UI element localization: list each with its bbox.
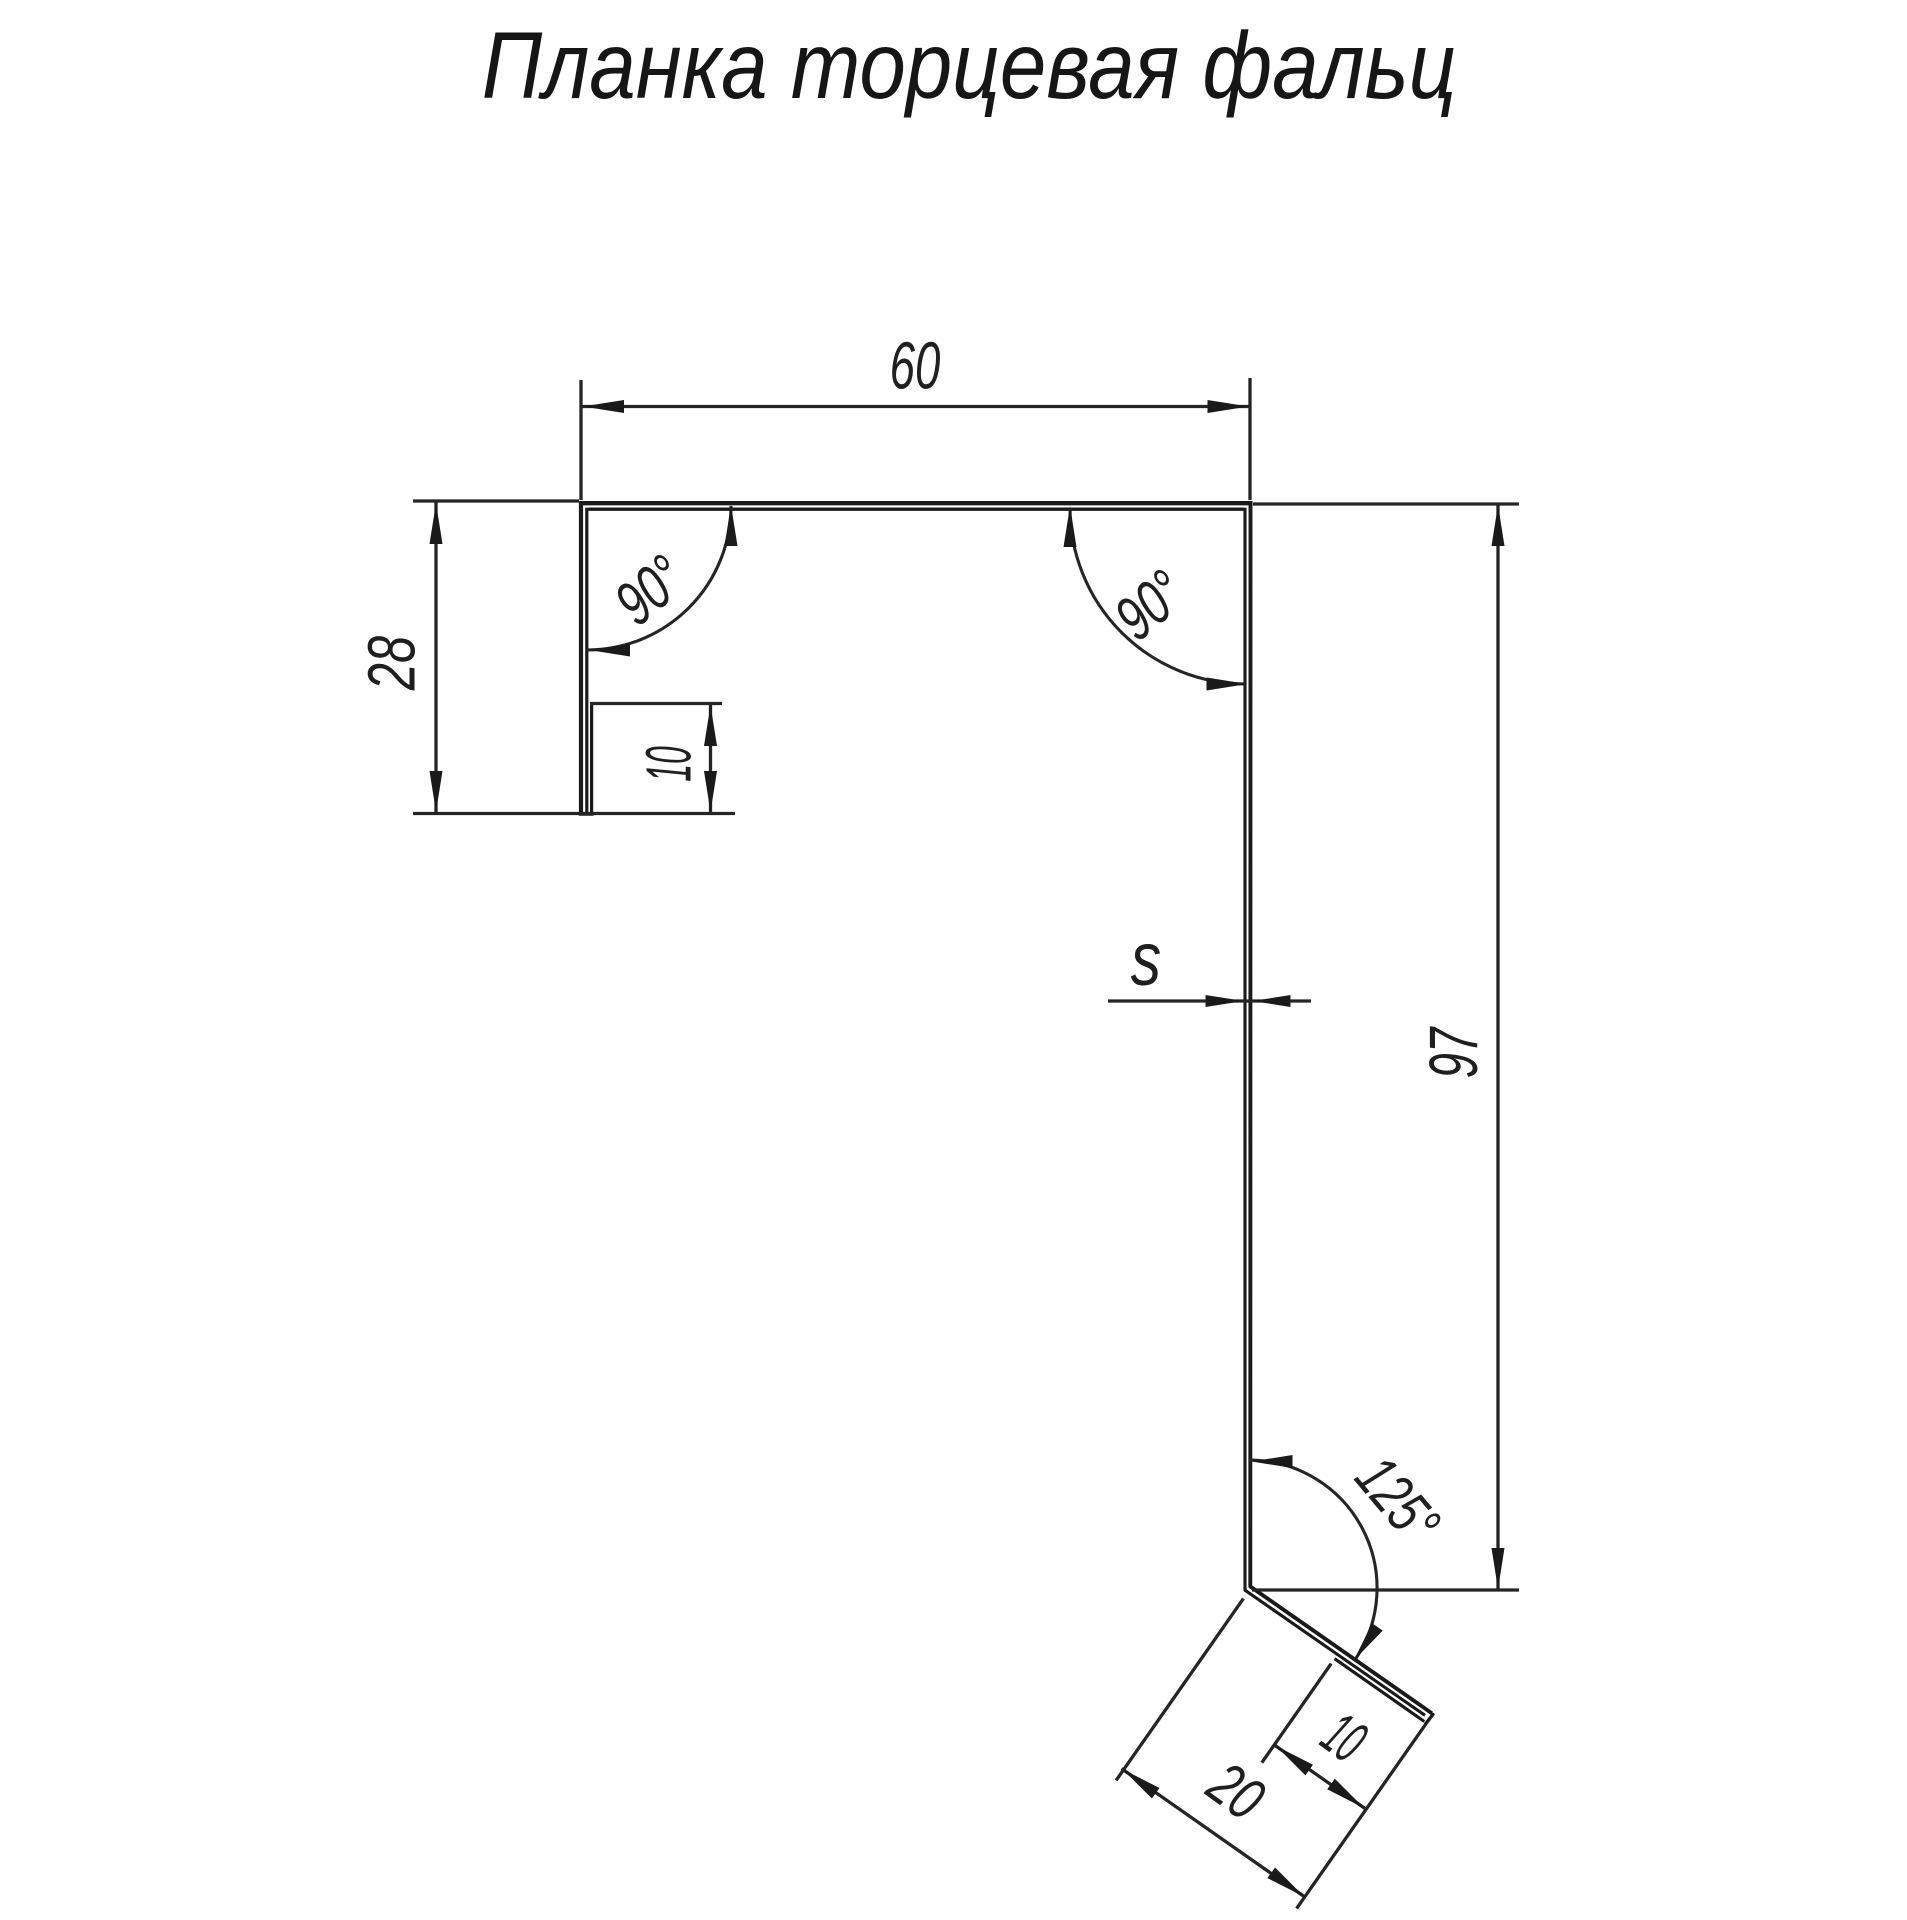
svg-text:125°: 125° xyxy=(1342,1444,1452,1557)
svg-text:90°: 90° xyxy=(1102,557,1198,653)
svg-text:10: 10 xyxy=(632,746,704,782)
svg-text:Планка торцевая фальц: Планка торцевая фальц xyxy=(482,12,1457,118)
svg-text:60: 60 xyxy=(890,329,941,404)
svg-text:s: s xyxy=(1131,917,1161,1002)
svg-text:10: 10 xyxy=(1310,1700,1378,1776)
svg-text:97: 97 xyxy=(1416,1026,1493,1079)
svg-text:90°: 90° xyxy=(602,542,698,638)
svg-text:28: 28 xyxy=(355,635,429,691)
